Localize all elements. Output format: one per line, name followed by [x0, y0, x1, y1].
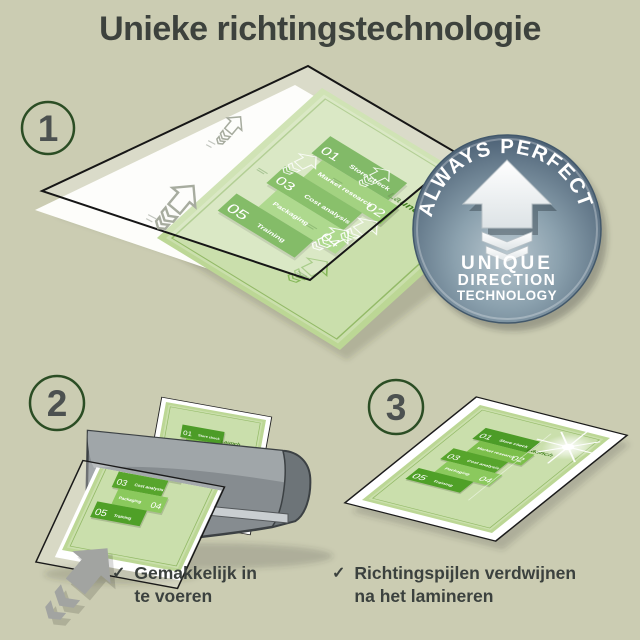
badge-line3: TECHNOLOGY: [457, 288, 557, 303]
caption-line: na het lamineren: [354, 586, 493, 606]
step-number: 2: [47, 383, 68, 424]
caption-line: Gemakkelijk in: [134, 563, 257, 583]
caption-line: Richtingspijlen verdwijnen: [354, 563, 576, 583]
check-icon: ✓: [332, 563, 345, 583]
check-icon: ✓: [112, 563, 125, 583]
caption-line: te voeren: [134, 586, 212, 606]
badge-line1: UNIQUE: [461, 253, 553, 274]
step-number: 1: [38, 108, 59, 149]
caption-easy-feed: ✓ Gemakkelijk in te voeren: [112, 562, 257, 608]
illustration-canvas: 01 Store check Market research 02 03 Cos…: [0, 0, 640, 640]
step-2-marker: 2: [30, 376, 84, 430]
step-1-marker: 1: [22, 102, 74, 154]
badge-line2: DIRECTION: [458, 272, 557, 289]
caption-arrows-disappear: ✓ Richtingspijlen verdwijnen na het lami…: [332, 562, 576, 608]
infographic-stage: Unieke richtingstechnologie: [0, 0, 640, 640]
step-3-marker: 3: [369, 380, 423, 434]
step-number: 3: [386, 387, 407, 428]
